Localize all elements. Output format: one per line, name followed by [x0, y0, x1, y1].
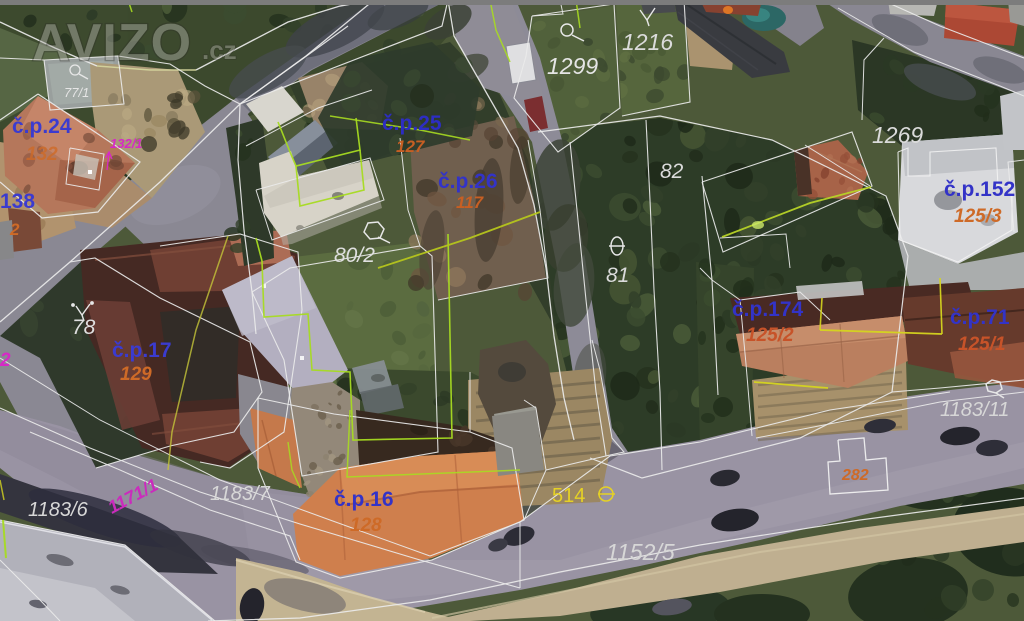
svg-text:č.p.17: č.p.17 — [112, 339, 172, 362]
svg-text:78: 78 — [72, 316, 96, 339]
svg-text:1183/11: 1183/11 — [940, 399, 1009, 421]
svg-text:132/1: 132/1 — [110, 136, 143, 151]
svg-text:128: 128 — [350, 515, 382, 536]
svg-text:1183/7: 1183/7 — [210, 483, 271, 505]
svg-text:80/2: 80/2 — [334, 244, 375, 267]
svg-text:125/3: 125/3 — [954, 206, 1002, 227]
svg-text:1299: 1299 — [547, 53, 598, 79]
svg-text:.cz: .cz — [202, 35, 237, 65]
svg-text:138: 138 — [0, 190, 35, 213]
svg-text:132: 132 — [26, 144, 58, 165]
svg-text:129: 129 — [120, 364, 152, 385]
svg-text:č.p.16: č.p.16 — [334, 488, 394, 511]
svg-text:1216: 1216 — [622, 29, 673, 55]
svg-text:282: 282 — [841, 467, 869, 484]
svg-text:č.p.24: č.p.24 — [12, 115, 72, 138]
svg-text:1152/5: 1152/5 — [606, 539, 675, 565]
svg-text:514: 514 — [552, 485, 585, 507]
svg-text:2: 2 — [0, 350, 11, 371]
svg-text:1183/6: 1183/6 — [28, 499, 89, 521]
svg-text:127: 127 — [396, 137, 426, 156]
svg-text:AVIZO: AVIZO — [32, 14, 192, 72]
svg-text:117: 117 — [456, 193, 485, 212]
svg-text:č.p.152: č.p.152 — [944, 178, 1015, 201]
svg-text:81: 81 — [606, 264, 629, 287]
svg-text:č.p.174: č.p.174 — [732, 298, 804, 321]
svg-text:82: 82 — [660, 160, 684, 183]
svg-text:1269: 1269 — [872, 122, 923, 148]
svg-text:125/1: 125/1 — [958, 334, 1006, 355]
svg-text:č.p.26: č.p.26 — [438, 170, 498, 193]
svg-text:č.p.25: č.p.25 — [382, 112, 442, 135]
svg-text:125/2: 125/2 — [746, 325, 794, 346]
svg-text:77/1: 77/1 — [64, 85, 89, 100]
svg-text:č.p.71: č.p.71 — [950, 306, 1010, 329]
svg-text:2: 2 — [9, 220, 20, 239]
